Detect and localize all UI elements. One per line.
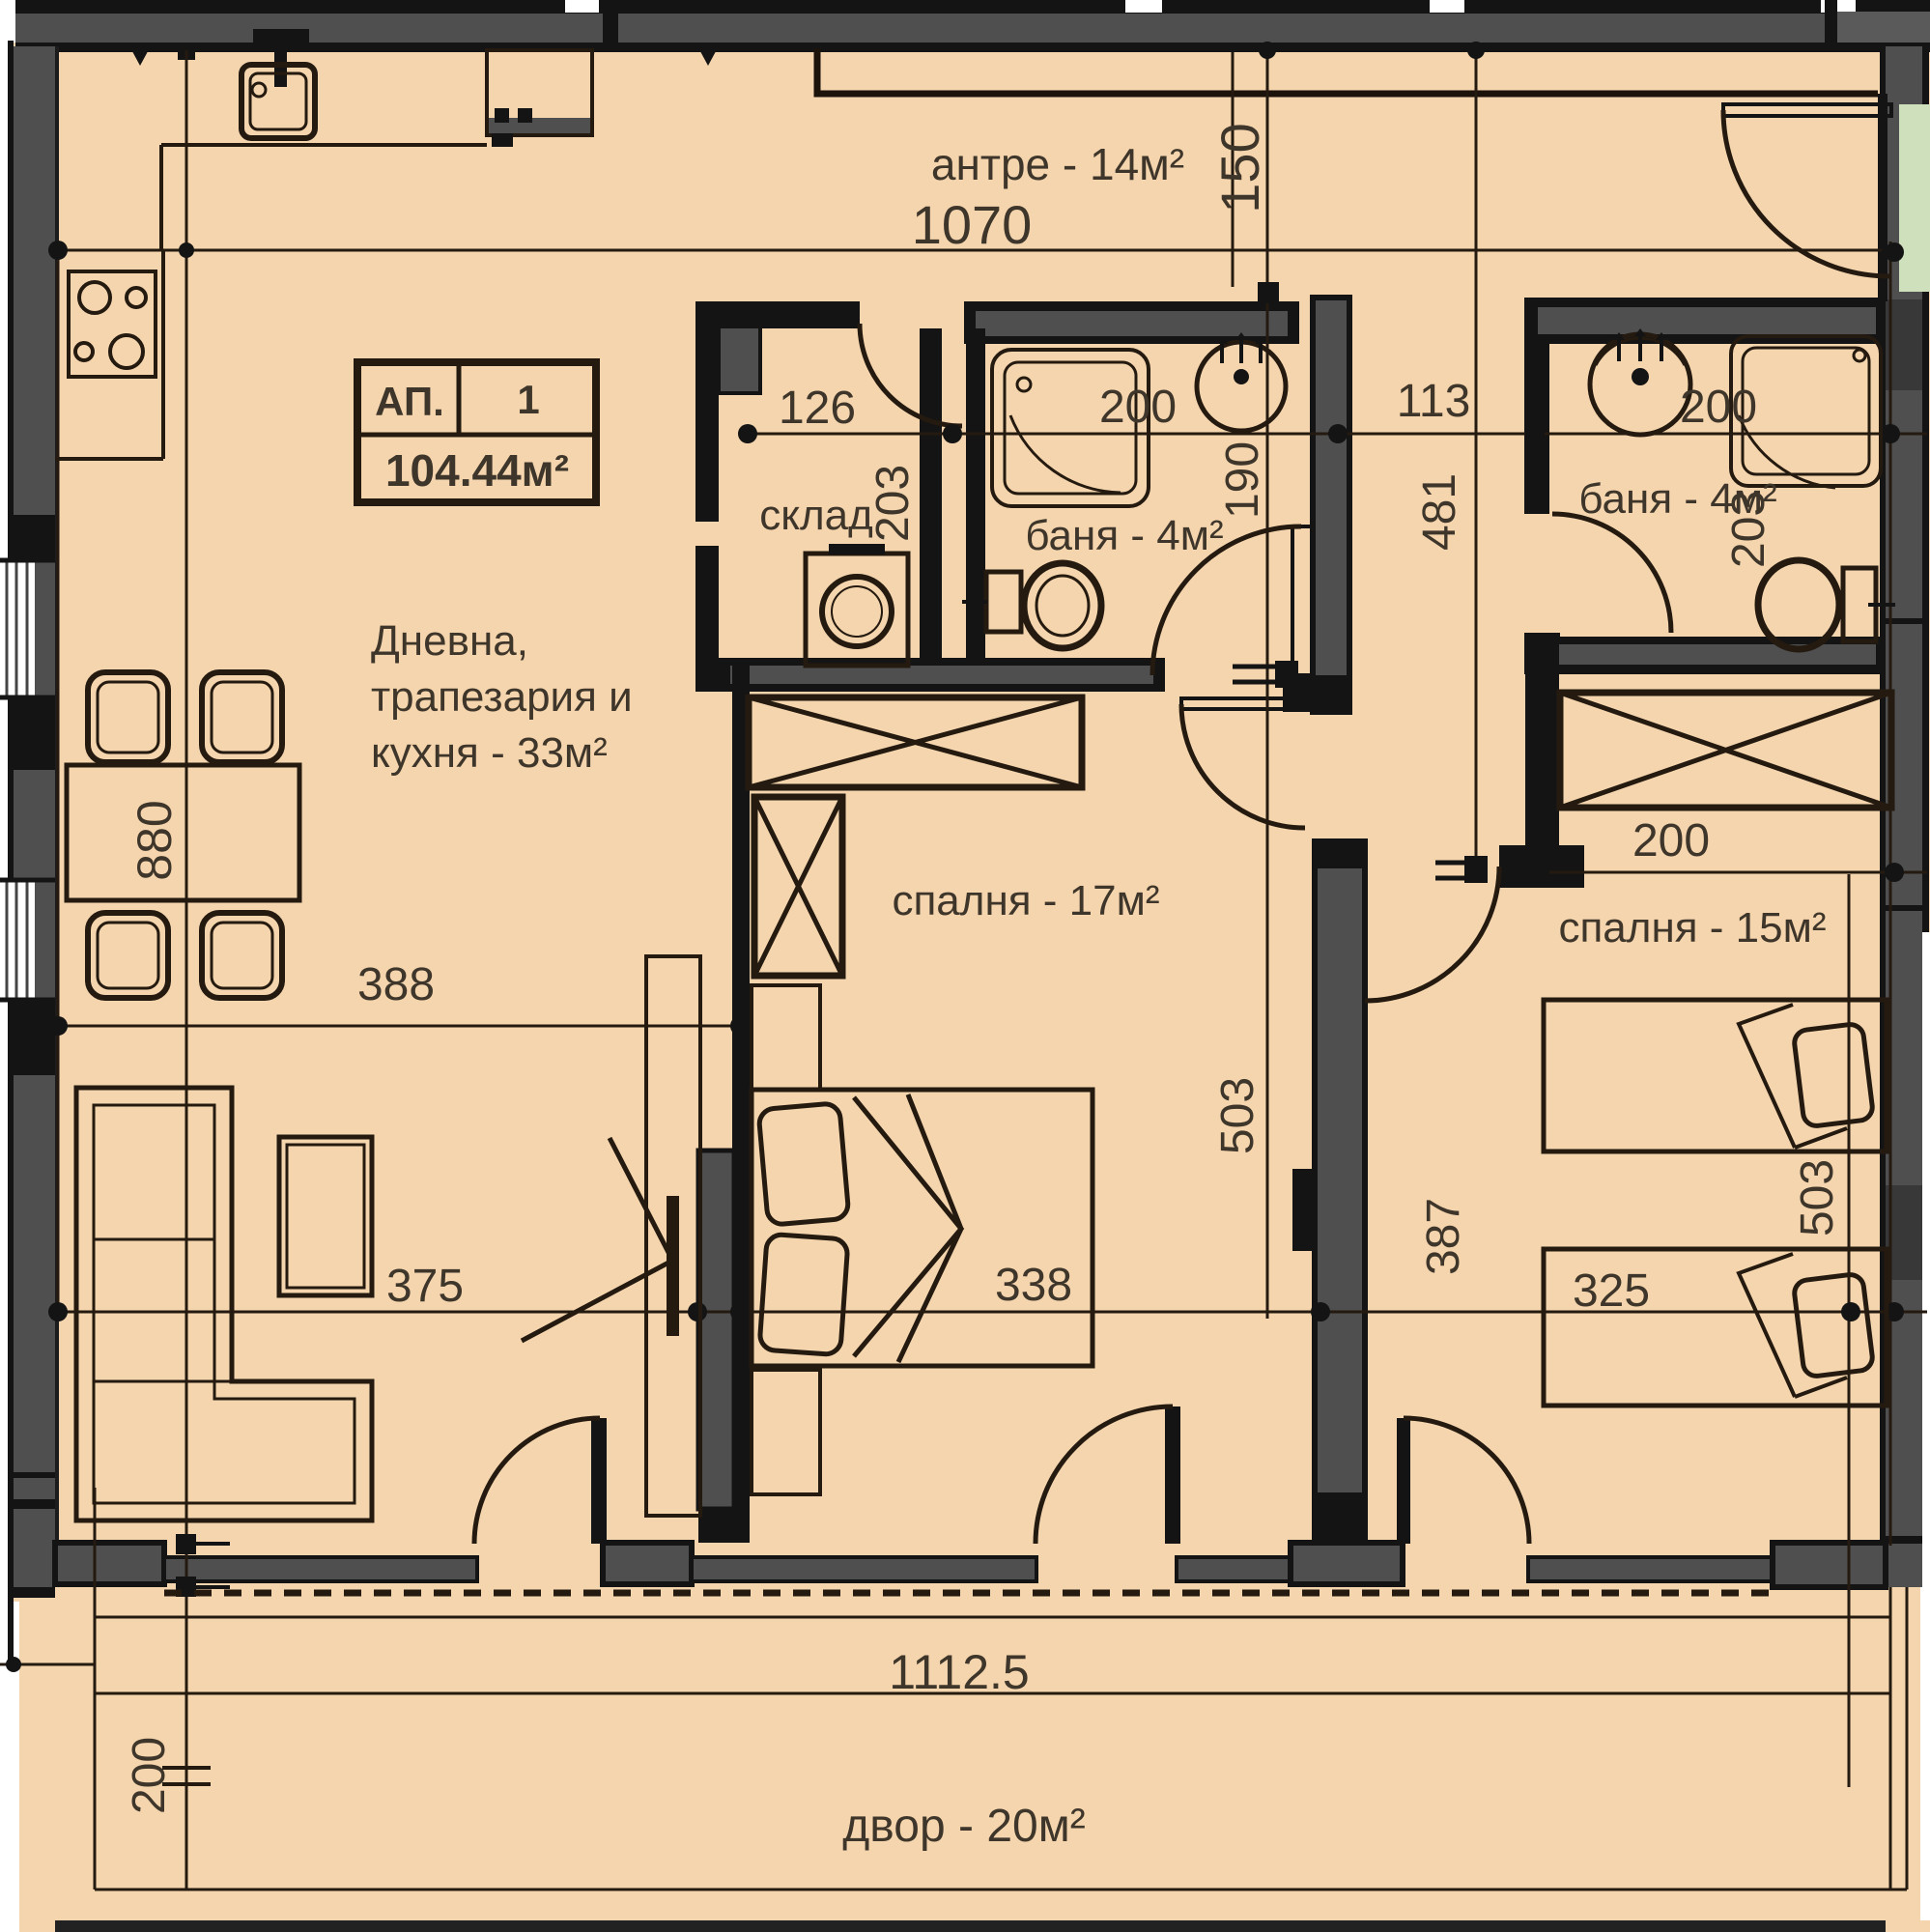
svg-text:АП.: АП. [375,379,444,424]
svg-text:325: 325 [1573,1265,1650,1317]
svg-text:880: 880 [128,800,182,880]
svg-text:203: 203 [867,465,919,542]
svg-text:1112.5: 1112.5 [889,1645,1030,1699]
svg-text:1070: 1070 [912,194,1033,255]
svg-text:338: 338 [995,1260,1072,1311]
svg-text:спалня - 17м²: спалня - 17м² [892,877,1159,924]
svg-text:антре - 14м²: антре - 14м² [931,139,1184,189]
svg-text:150: 150 [1209,123,1270,213]
svg-text:481: 481 [1414,473,1465,551]
svg-text:104.44м²: 104.44м² [385,445,569,496]
svg-text:190: 190 [1217,441,1268,519]
svg-text:503: 503 [1212,1077,1263,1154]
svg-text:склад: склад [759,492,873,539]
svg-text:1: 1 [517,377,539,422]
svg-text:375: 375 [386,1261,464,1312]
svg-text:баня - 4м²: баня - 4м² [1025,512,1223,559]
svg-text:200: 200 [1099,382,1177,433]
svg-text:двор - 20м²: двор - 20м² [842,1801,1085,1852]
svg-text:126: 126 [779,383,856,434]
svg-text:200: 200 [124,1737,175,1814]
svg-text:кухня - 33м²: кухня - 33м² [371,729,608,777]
svg-text:200: 200 [1680,382,1757,433]
svg-text:200: 200 [1632,815,1710,867]
svg-text:387: 387 [1418,1198,1469,1275]
svg-text:спалня - 15м²: спалня - 15м² [1558,904,1826,952]
svg-text:113: 113 [1397,376,1471,427]
svg-text:трапезария и: трапезария и [371,673,633,721]
svg-text:Дневна,: Дневна, [371,617,528,665]
svg-text:503: 503 [1792,1159,1843,1236]
svg-text:388: 388 [357,959,435,1010]
svg-text:203: 203 [1723,491,1774,568]
